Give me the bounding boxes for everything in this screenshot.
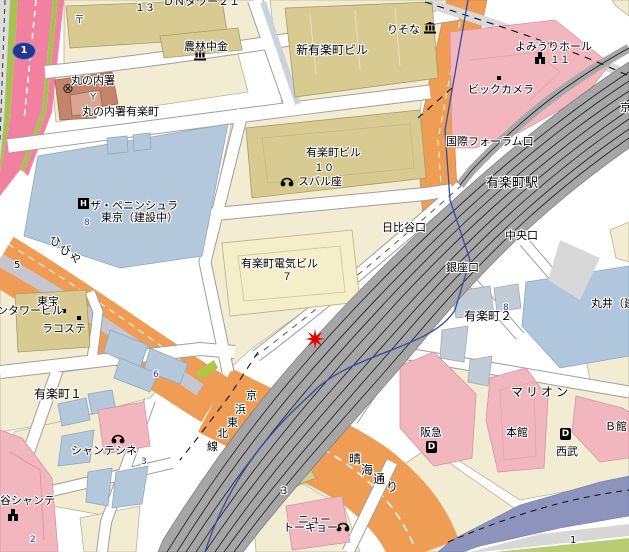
entrance-dot [497,76,501,80]
hotel-icon: H [78,198,89,209]
map-graphics [0,0,629,552]
bldg-toho [15,290,90,352]
department-store-icon: D [560,428,571,440]
entrance-dot [62,309,66,313]
route-shield-icon: 1 [12,42,36,60]
department-store-icon: D [426,441,437,453]
bldg-denki [222,230,360,316]
map-canvas[interactable]: 1 ⊗ H D D ＤＮタワー２１１３〒農林中金丸の内署Y丸の内署有楽町新有楽町… [0,0,629,552]
red-star-marker [305,329,325,349]
police-station-icon: ⊗ [62,82,74,96]
bldg-chanter-cine [98,402,150,454]
entrance-dot [77,316,81,320]
